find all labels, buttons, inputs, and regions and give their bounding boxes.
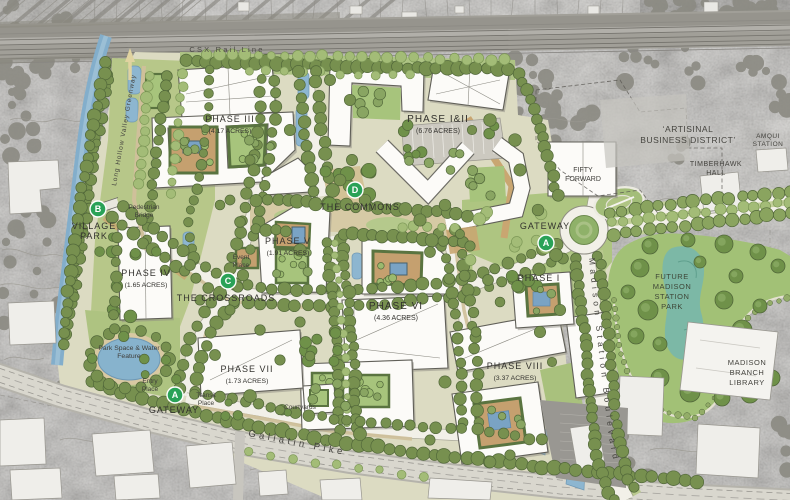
svg-text:STATION: STATION	[655, 292, 690, 301]
svg-text:MADISON: MADISON	[653, 282, 692, 291]
svg-text:THE COMMONS: THE COMMONS	[320, 202, 400, 212]
svg-text:Entry: Entry	[142, 378, 158, 385]
svg-text:A: A	[172, 390, 179, 400]
svg-text:PARK: PARK	[80, 231, 108, 241]
svg-text:AMQUI: AMQUI	[756, 133, 780, 140]
svg-text:HALL: HALL	[706, 170, 726, 177]
svg-text:PHASE IV: PHASE IV	[121, 268, 171, 278]
svg-text:THE CROSSROADS: THE CROSSROADS	[177, 293, 276, 303]
svg-text:PHASE I&II: PHASE I&II	[407, 114, 469, 125]
svg-text:Place: Place	[198, 400, 215, 407]
svg-text:PHASE I: PHASE I	[518, 273, 561, 283]
svg-text:GATEWAY: GATEWAY	[520, 221, 570, 231]
svg-text:PHASE V: PHASE V	[265, 236, 311, 246]
svg-text:Event: Event	[233, 254, 250, 261]
svg-text:STATION: STATION	[753, 141, 784, 148]
svg-text:(3.37 ACRES): (3.37 ACRES)	[494, 375, 537, 382]
svg-text:Courtyards: Courtyards	[284, 404, 317, 411]
svg-text:(1.73 ACRES): (1.73 ACRES)	[226, 378, 269, 385]
svg-text:MADISON: MADISON	[728, 358, 767, 367]
svg-text:BUSINESS DISTRICT’: BUSINESS DISTRICT’	[640, 135, 735, 145]
svg-text:Place: Place	[142, 386, 159, 393]
svg-text:PARK: PARK	[661, 302, 683, 311]
svg-text:(4.36 ACRES): (4.36 ACRES)	[374, 315, 418, 322]
svg-text:Pedestrian: Pedestrian	[128, 204, 159, 211]
svg-text:Place: Place	[233, 262, 250, 269]
svg-text:FORWARD: FORWARD	[565, 176, 601, 183]
svg-text:Feature: Feature	[117, 353, 141, 360]
svg-text:(1.91 ACRES): (1.91 ACRES)	[267, 250, 310, 257]
svg-text:PHASE VII: PHASE VII	[220, 364, 273, 374]
svg-text:D: D	[352, 185, 359, 195]
svg-text:FUTURE: FUTURE	[655, 272, 688, 281]
svg-text:B: B	[95, 204, 102, 214]
svg-text:PHASE III: PHASE III	[205, 114, 255, 124]
svg-text:VILLAGE: VILLAGE	[72, 221, 117, 231]
svg-text:(1.65 ACRES): (1.65 ACRES)	[125, 282, 168, 289]
svg-text:PHASE VI: PHASE VI	[369, 301, 423, 312]
svg-text:Park Space & Water: Park Space & Water	[98, 345, 160, 352]
svg-text:Bridge: Bridge	[135, 212, 154, 219]
svg-text:A: A	[543, 238, 550, 248]
svg-text:BRANCH: BRANCH	[730, 368, 765, 377]
svg-text:CSX Rail Line: CSX Rail Line	[189, 45, 264, 54]
svg-text:Transit: Transit	[196, 392, 216, 399]
svg-text:‘ARTISINAL: ‘ARTISINAL	[663, 124, 714, 134]
svg-text:(4.17 ACRES): (4.17 ACRES)	[209, 128, 252, 135]
svg-text:GATEWAY: GATEWAY	[149, 405, 199, 415]
svg-text:TIMBERHAWK: TIMBERHAWK	[690, 161, 742, 168]
svg-text:FIFTY: FIFTY	[573, 167, 593, 174]
svg-text:C: C	[225, 276, 232, 286]
svg-text:(6.76 ACRES): (6.76 ACRES)	[416, 128, 460, 135]
svg-text:LIBRARY: LIBRARY	[729, 378, 764, 387]
svg-text:PHASE VIII: PHASE VIII	[487, 361, 544, 371]
